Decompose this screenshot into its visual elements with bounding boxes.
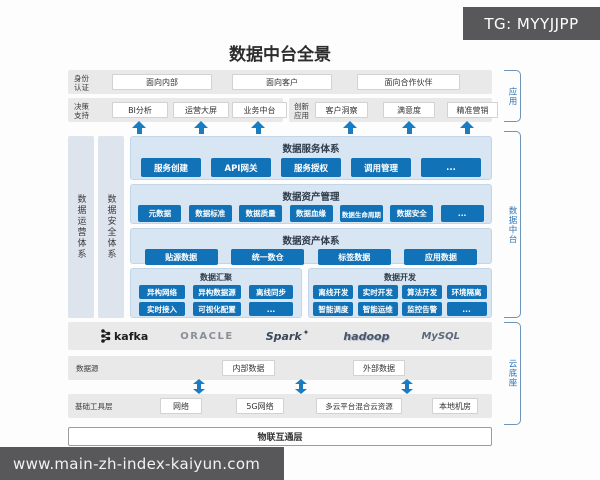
diagram-chip: 应用数据 xyxy=(404,249,477,265)
panel-data-development: 数据开发 离线开发 实时开发 算法开发 环境隔离 智能调度 智能运维 监控告警 … xyxy=(308,268,492,318)
white-box: 面向内部 xyxy=(112,74,212,90)
white-box: 面向合作伙伴 xyxy=(357,74,460,90)
diagram-chip: ... xyxy=(249,302,293,316)
data-source-label: 数据源 xyxy=(76,364,116,373)
diagram-chip: 调用管理 xyxy=(351,158,411,177)
white-box: 多云平台混合云资源 xyxy=(316,398,402,414)
white-box: 客户洞察 xyxy=(315,102,368,118)
watermark-url: www.main-zh-index-kaiyun.com xyxy=(0,447,284,480)
diagram-chip: API网关 xyxy=(211,158,271,177)
diagram-chip: 异构网络 xyxy=(139,285,185,299)
data-source-row: 数据源 内部数据 外部数据 xyxy=(68,356,492,380)
double-arrow-icon xyxy=(295,379,307,394)
white-box: 内部数据 xyxy=(222,360,275,376)
panel-data-aggregation-title: 数据汇聚 xyxy=(131,269,301,283)
panel-asset-management-title: 数据资产管理 xyxy=(131,185,491,203)
double-arrow-icon xyxy=(401,379,413,394)
diagram-chip: 离线开发 xyxy=(313,285,353,299)
bracket-data-platform-label: 数据中台 xyxy=(506,206,518,244)
diagram-chip: 可视化配置 xyxy=(193,302,241,316)
panel-data-service: 数据服务体系 服务创建 API网关 服务授权 调用管理 ... xyxy=(130,136,492,180)
innovation-app-row: 创新应用 客户洞察 满意度 精准营销 xyxy=(289,98,492,122)
decision-support-row: 决策支持 BI分析 运营大屏 业务中台 xyxy=(68,98,283,122)
diagram-chip: ... xyxy=(441,205,484,222)
pillar-data-security-label: 数据安全体系 xyxy=(105,194,118,260)
diagram-chip: 数据安全 xyxy=(390,205,433,222)
diagram-chip: 智能运维 xyxy=(358,302,398,316)
mysql-logo: MySQL xyxy=(421,331,460,342)
diagram-chip: 实时开发 xyxy=(358,285,398,299)
panel-data-aggregation: 数据汇聚 异构网络 异构数据源 离线同步 实时接入 可视化配置 ... xyxy=(130,268,302,318)
white-box: 外部数据 xyxy=(353,360,405,376)
up-arrow-icon xyxy=(460,121,474,134)
diagram-chip: 数据标准 xyxy=(189,205,232,222)
pillar-data-security: 数据安全体系 xyxy=(98,136,124,318)
panel-data-development-title: 数据开发 xyxy=(309,269,491,283)
white-box: BI分析 xyxy=(112,102,168,118)
pillar-data-operation-label: 数据运营体系 xyxy=(75,194,88,260)
iot-layer: 物联互通层 xyxy=(68,427,492,446)
white-box: 5G网络 xyxy=(236,398,284,414)
diagram-chip: 异构数据源 xyxy=(193,285,241,299)
bracket-cloud-base: 云底座 xyxy=(504,322,521,425)
bracket-application-label: 应用 xyxy=(506,87,518,106)
bracket-cloud-base-label: 云底座 xyxy=(506,359,518,388)
innovation-app-label: 创新应用 xyxy=(294,102,312,121)
diagram-chip: 服务创建 xyxy=(141,158,201,177)
white-box: 面向客户 xyxy=(232,74,332,90)
identity-auth-label: 身份认证 xyxy=(74,74,92,93)
diagram-chip: 标签数据 xyxy=(318,249,391,265)
diagram-chip: 离线同步 xyxy=(249,285,293,299)
panel-data-service-title: 数据服务体系 xyxy=(131,137,491,155)
white-box: 网络 xyxy=(160,398,202,414)
white-box: 满意度 xyxy=(383,102,435,118)
diagram-chip: 元数据 xyxy=(138,205,181,222)
bracket-data-platform: 数据中台 xyxy=(504,131,521,318)
tech-logos-row: kafka ORACLE Spark ✦ hadoop MySQL xyxy=(68,322,492,350)
white-box: 运营大屏 xyxy=(173,102,229,118)
up-arrow-icon xyxy=(194,121,208,134)
up-arrow-icon xyxy=(402,121,416,134)
hadoop-logo: hadoop xyxy=(343,330,389,343)
diagram-chip: 贴源数据 xyxy=(145,249,218,265)
kafka-icon xyxy=(100,328,111,344)
diagram-chip: 实时接入 xyxy=(139,302,185,316)
pillar-data-operation: 数据运营体系 xyxy=(68,136,94,318)
diagram-chip: 算法开发 xyxy=(402,285,442,299)
diagram-chip: 服务授权 xyxy=(281,158,341,177)
diagram-chip: 统一数仓 xyxy=(231,249,304,265)
diagram-chip: 智能调度 xyxy=(313,302,353,316)
diagram-chip: 监控告警 xyxy=(402,302,442,316)
kafka-logo: kafka xyxy=(100,328,148,344)
diagram-chip: 环境隔离 xyxy=(447,285,487,299)
white-box: 业务中台 xyxy=(232,102,287,118)
infrastructure-label: 基础工具层 xyxy=(75,402,125,411)
panel-asset-management: 数据资产管理 元数据 数据标准 数据质量 数据血缘 数据生命周期 数据安全 ..… xyxy=(130,184,492,224)
diagram-chip: 数据质量 xyxy=(239,205,282,222)
page-title: 数据中台全景 xyxy=(68,40,492,65)
diagram-chip: 数据血缘 xyxy=(290,205,333,222)
watermark-telegram: TG: MYYJJPP xyxy=(463,7,600,40)
spark-star-icon: ✦ xyxy=(303,328,310,337)
diagram-chip: ... xyxy=(421,158,481,177)
up-arrow-icon xyxy=(343,121,357,134)
panel-asset-system: 数据资产体系 贴源数据 统一数仓 标签数据 应用数据 xyxy=(130,228,492,264)
white-box: 精准营销 xyxy=(447,102,498,118)
up-arrow-icon xyxy=(132,121,146,134)
diagram-chip: 数据生命周期 xyxy=(340,205,383,222)
double-arrow-icon xyxy=(193,379,205,394)
oracle-logo: ORACLE xyxy=(180,331,233,342)
up-arrow-icon xyxy=(251,121,265,134)
identity-auth-row: 身份认证 面向内部 面向客户 面向合作伙伴 xyxy=(68,70,492,94)
bracket-application: 应用 xyxy=(504,70,521,122)
decision-support-label: 决策支持 xyxy=(74,102,92,121)
infrastructure-row: 基础工具层 网络 5G网络 多云平台混合云资源 本地机房 xyxy=(68,394,492,418)
white-box: 本地机房 xyxy=(432,398,478,414)
spark-logo: Spark ✦ xyxy=(266,330,312,343)
panel-asset-system-title: 数据资产体系 xyxy=(131,229,491,247)
diagram-chip: ... xyxy=(447,302,487,316)
